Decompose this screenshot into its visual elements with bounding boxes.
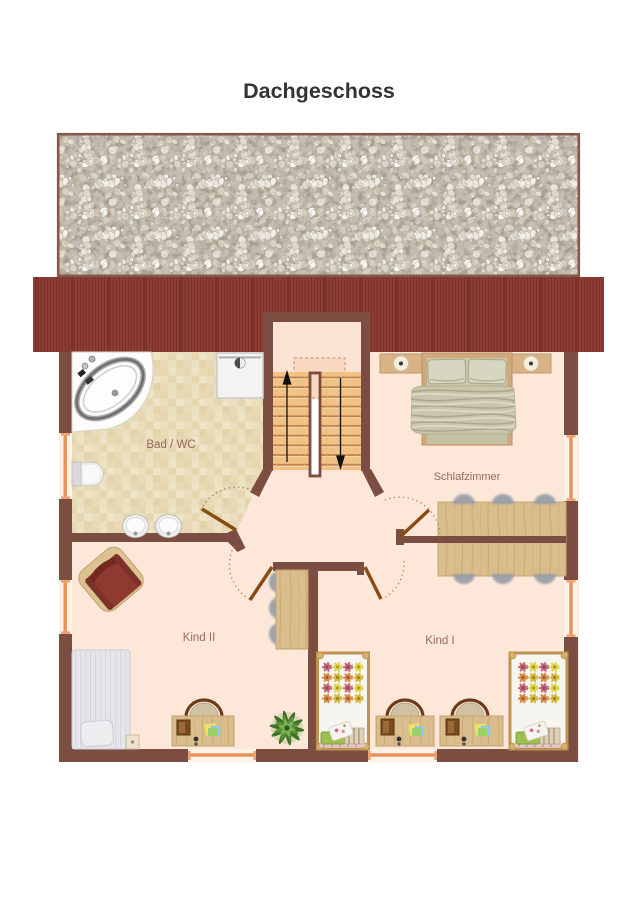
svg-text:Schlafzimmer: Schlafzimmer <box>434 471 501 483</box>
svg-text:Bad / WC: Bad / WC <box>146 439 195 451</box>
svg-text:Kind II: Kind II <box>183 632 216 644</box>
svg-text:Dachgeschoss: Dachgeschoss <box>243 79 395 103</box>
svg-text:Kind I: Kind I <box>425 635 454 647</box>
